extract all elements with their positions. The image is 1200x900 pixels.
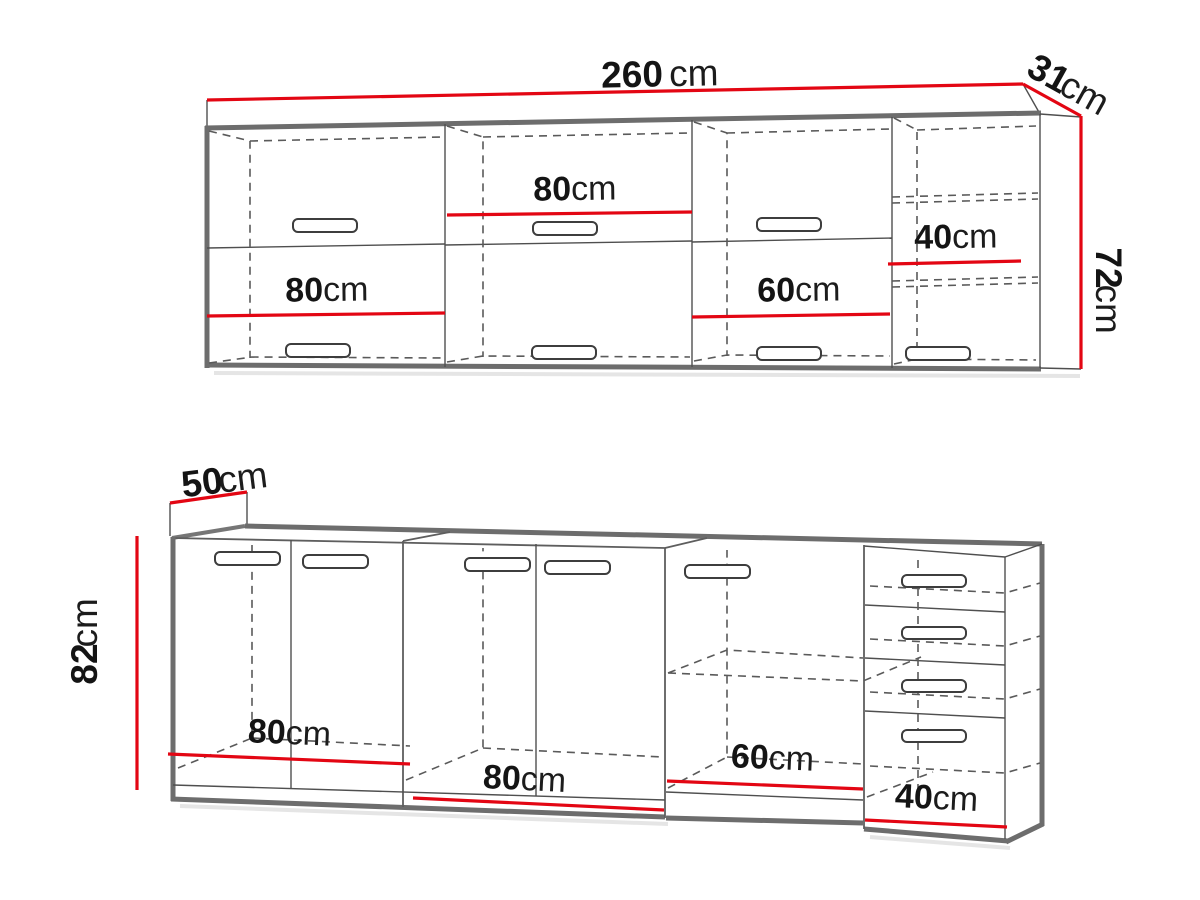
dimension-label-wall-section-2: 80cm bbox=[533, 169, 617, 208]
dimension-label-base-section-3: 60cm bbox=[730, 737, 815, 778]
door-handle bbox=[215, 552, 280, 565]
dimension-label-wall-section-3: 60cm bbox=[757, 270, 841, 309]
door-handle bbox=[533, 222, 597, 235]
door-handle bbox=[685, 565, 750, 578]
door-handle bbox=[757, 347, 821, 360]
door-handle bbox=[293, 219, 357, 232]
drawer-handle bbox=[902, 680, 966, 692]
drawer-handle bbox=[902, 575, 966, 587]
door-handle bbox=[906, 347, 970, 360]
base-cabinet-run: 50cm 82cm 80cm 80cm 60cm 40cm bbox=[64, 454, 1043, 848]
dimension-label-wall-height: 72cm bbox=[1088, 247, 1129, 333]
door-handle bbox=[465, 558, 530, 571]
wall-side-bottom-edge bbox=[1040, 368, 1081, 369]
wall-cabinet-run: 260cm 31cm 72cm 80cm 80cm 60cm 40cm bbox=[205, 46, 1129, 376]
wall-shadow bbox=[214, 373, 1080, 376]
cabinet-dimension-diagram: 260cm 31cm 72cm 80cm 80cm 60cm 40cm bbox=[0, 0, 1200, 900]
dimension-label-wall-width: 260cm bbox=[601, 52, 719, 95]
wall-right-side-face bbox=[1040, 114, 1081, 369]
dimension-label-wall-section-1: 80cm bbox=[285, 270, 369, 309]
dimension-label-base-height: 82cm bbox=[64, 598, 105, 684]
dimension-label-wall-section-4: 40cm bbox=[914, 217, 998, 256]
door-handle bbox=[545, 561, 610, 574]
dimension-label-base-section-1: 80cm bbox=[247, 712, 332, 753]
dimension-label-base-depth: 50cm bbox=[179, 454, 270, 505]
door-handle bbox=[757, 218, 821, 231]
door-handle bbox=[303, 555, 368, 568]
door-handle bbox=[532, 346, 596, 359]
drawer-handle bbox=[902, 730, 966, 742]
diagram-canvas: 260cm 31cm 72cm 80cm 80cm 60cm 40cm bbox=[0, 0, 1200, 900]
drawer-handle bbox=[902, 627, 966, 639]
dimension-label-base-section-4: 40cm bbox=[894, 777, 979, 819]
dimension-label-base-section-2: 80cm bbox=[482, 758, 567, 800]
door-handle bbox=[286, 344, 350, 357]
